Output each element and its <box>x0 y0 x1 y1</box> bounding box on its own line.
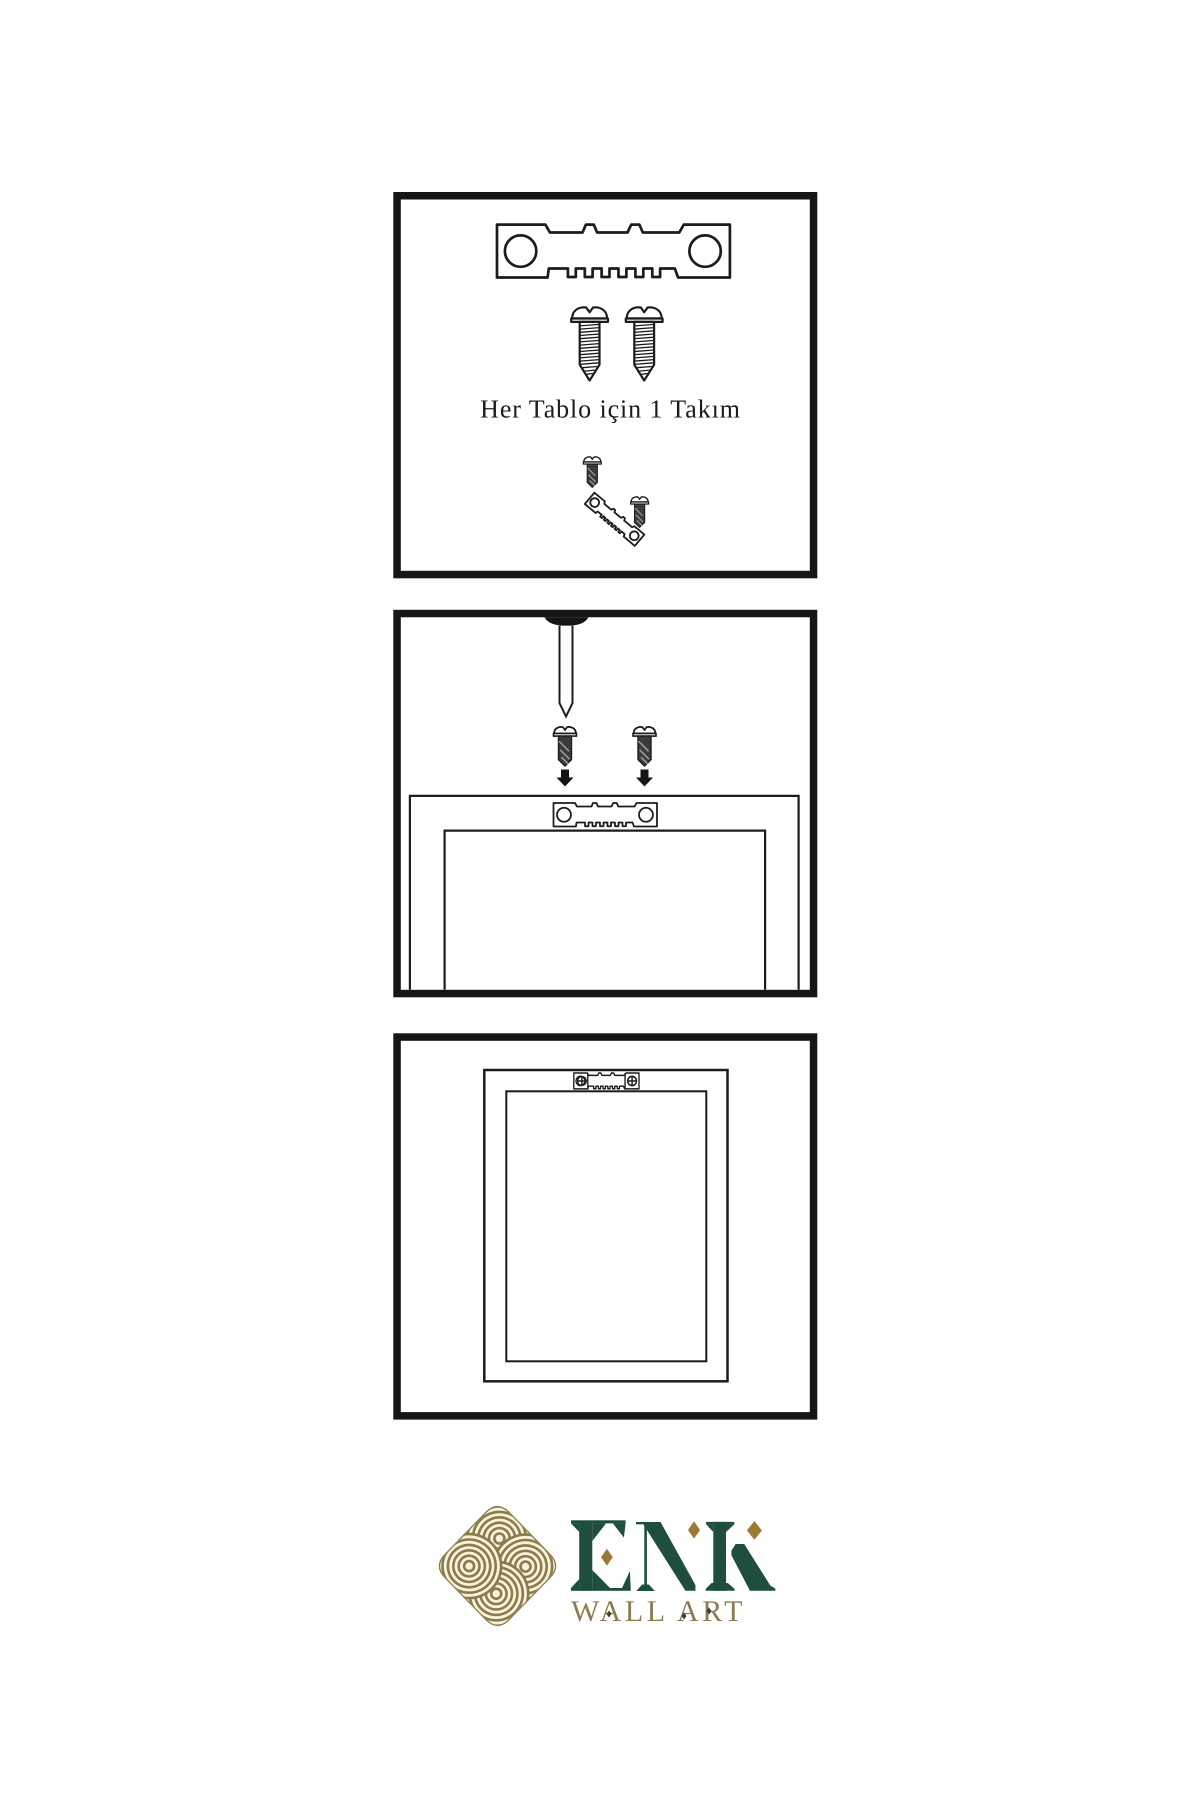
svg-text:WALL ART: WALL ART <box>571 1595 746 1628</box>
svg-text:Her Tablo için 1 Takım: Her Tablo için 1 Takım <box>480 395 741 424</box>
